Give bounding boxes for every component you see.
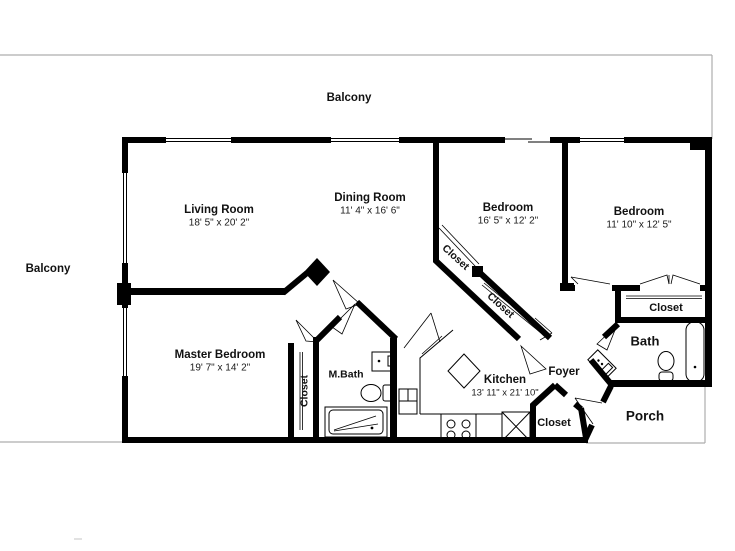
- kitchen-sink: [502, 412, 530, 441]
- refrigerator: [399, 389, 417, 414]
- door-swing: [422, 336, 442, 354]
- bedroom-right-label: Bedroom: [614, 206, 664, 218]
- dining-room-label: Dining Room: [334, 192, 406, 204]
- bath-toilet: [658, 352, 674, 382]
- master-bedroom-label: Master Bedroom: [175, 349, 266, 361]
- door-swing: [575, 398, 602, 403]
- master-closet-label: Closet: [299, 374, 311, 407]
- stove: [441, 414, 476, 441]
- bedroom-center-label: Bedroom: [483, 202, 533, 214]
- kitchen-counter: [420, 330, 502, 414]
- kitchen-island: [448, 354, 480, 388]
- door-swings: [296, 225, 702, 430]
- door-swing: [431, 313, 440, 342]
- bedroom-center-dimensions: 16' 5" x 12' 2": [478, 216, 539, 227]
- balcony-top-label: Balcony: [327, 92, 372, 104]
- master-bathtub: [325, 407, 387, 437]
- door-swing: [404, 313, 431, 348]
- bifold-door: [640, 275, 669, 284]
- bifold-door: [671, 275, 700, 284]
- dining-room-dimensions: 11' 4" x 16' 6": [340, 206, 400, 217]
- fireplace: [304, 258, 330, 286]
- foyer-label: Foyer: [548, 366, 580, 378]
- bedroom-right-dimensions: 11' 10" x 12' 5": [606, 220, 672, 231]
- porch-label: Porch: [626, 409, 664, 424]
- master-bedroom-dimensions: 19' 7" x 14' 2": [190, 363, 251, 374]
- kitchen-dimensions: 13' 11" x 21' 10": [471, 387, 538, 398]
- kitchen-label: Kitchen: [484, 374, 526, 386]
- windows: [124, 139, 625, 377]
- master-toilet: [361, 385, 393, 402]
- master-bath-label: M.Bath: [329, 369, 364, 381]
- entry-closet-label: Closet: [537, 417, 571, 429]
- living-room-label: Living Room: [184, 204, 254, 216]
- balcony-outline: [0, 55, 712, 442]
- floor-plan-drawing: Balcony Balcony Living Room 18' 5" x 20'…: [0, 0, 735, 551]
- hall-closet-label: Closet: [649, 302, 683, 314]
- floor-plan-canvas: Balcony Balcony Living Room 18' 5" x 20'…: [0, 0, 735, 551]
- bath-vanity: [588, 350, 616, 378]
- door-swing: [521, 346, 546, 374]
- stray-mark: [74, 538, 82, 540]
- bath-label: Bath: [631, 334, 660, 349]
- door-swing: [296, 320, 318, 342]
- living-room-dimensions: 18' 5" x 20' 2": [189, 218, 250, 229]
- balcony-left-label: Balcony: [26, 263, 71, 275]
- bathtub: [686, 322, 704, 382]
